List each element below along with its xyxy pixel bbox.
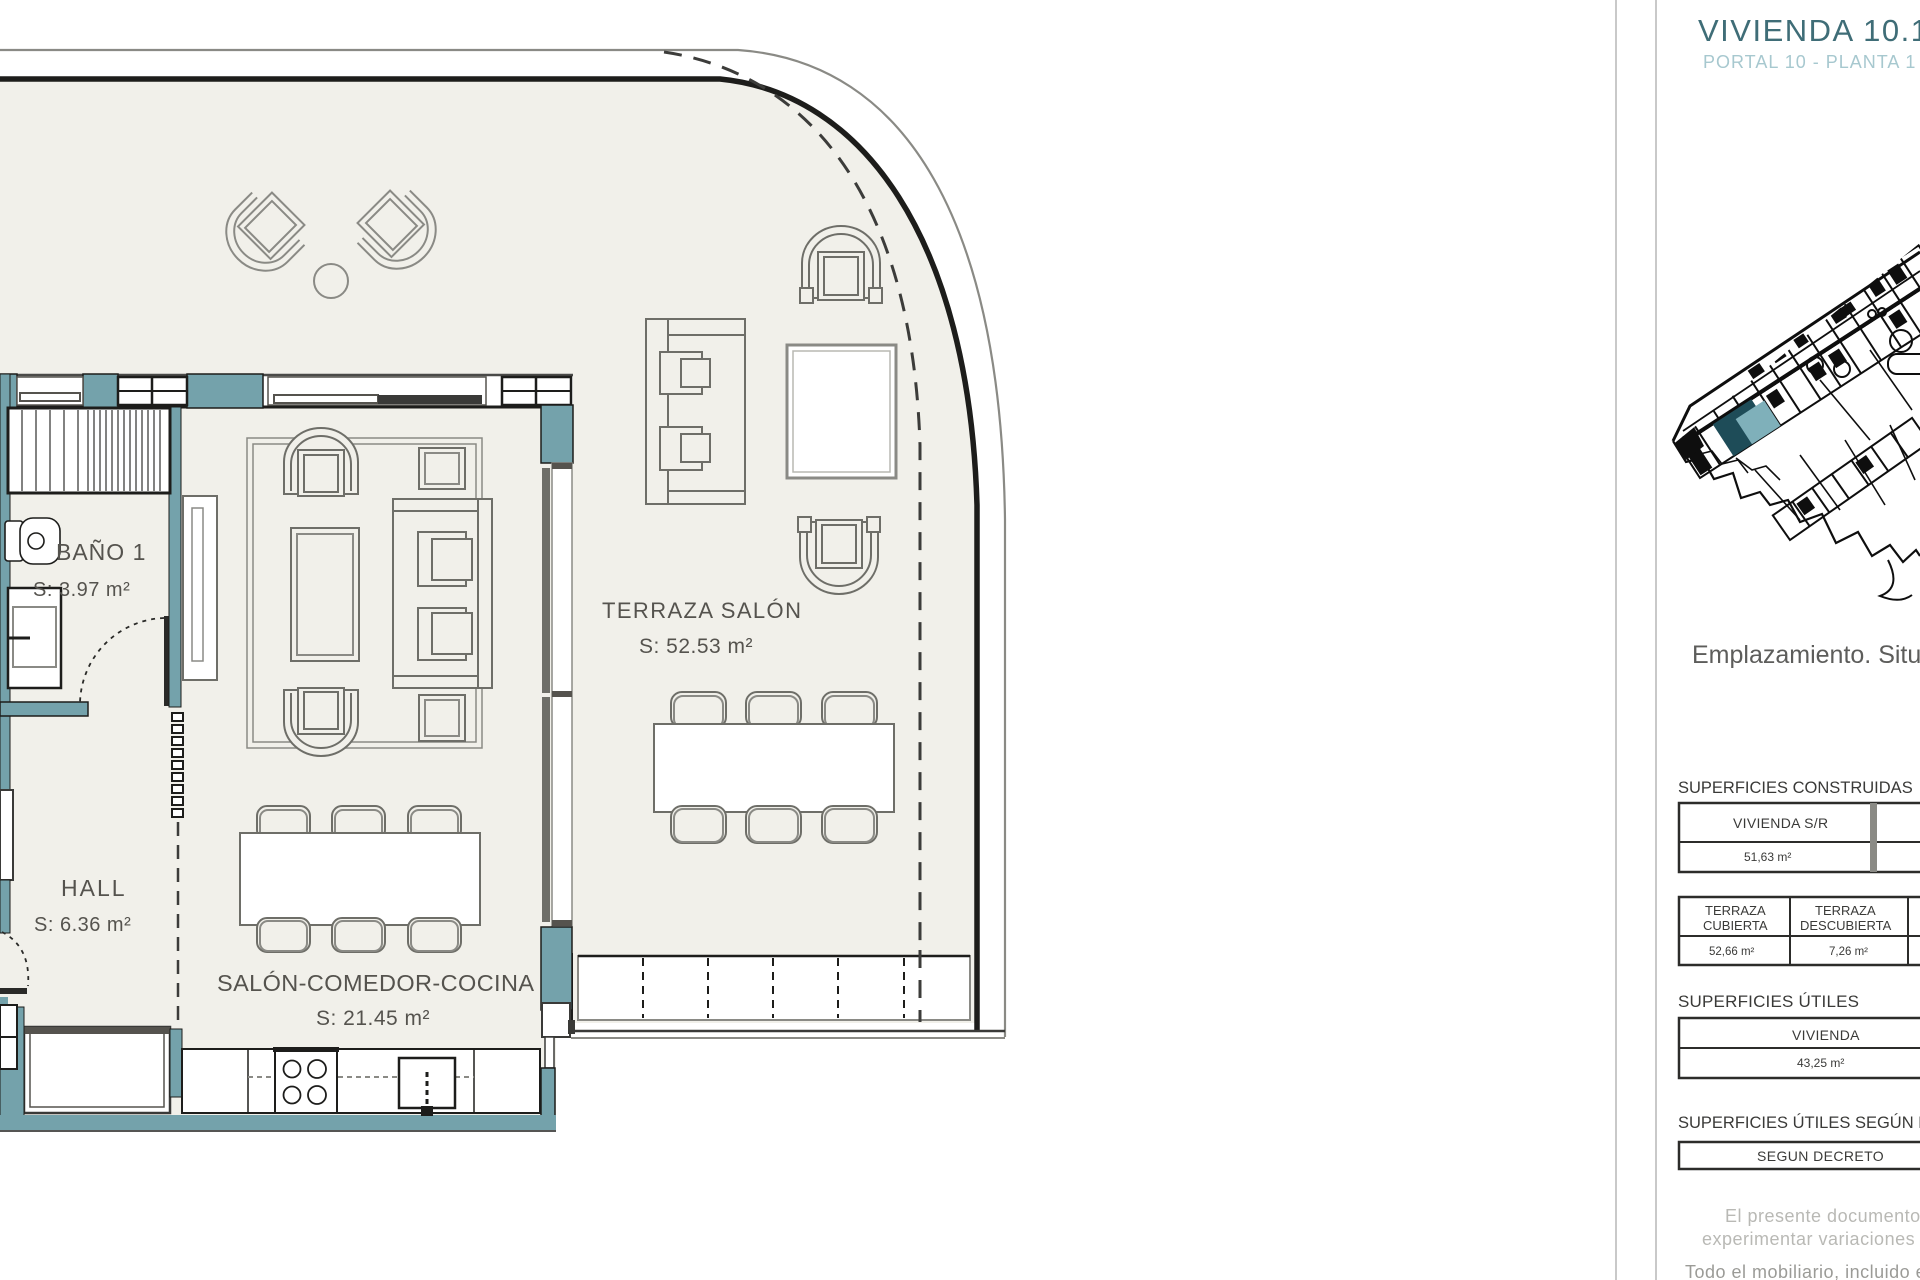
svg-text:experimentar variaciones: experimentar variaciones bbox=[1702, 1229, 1915, 1249]
svg-text:SEGUN DECRETO: SEGUN DECRETO bbox=[1757, 1148, 1884, 1164]
svg-text:El presente documento: El presente documento bbox=[1725, 1206, 1920, 1226]
svg-text:SUPERFICIES ÚTILES: SUPERFICIES ÚTILES bbox=[1678, 992, 1859, 1011]
svg-text:DESCUBIERTA: DESCUBIERTA bbox=[1800, 918, 1892, 933]
svg-text:S: 52.53 m²: S: 52.53 m² bbox=[639, 635, 753, 658]
svg-text:Todo el mobiliario, incluido e: Todo el mobiliario, incluido el bbox=[1685, 1262, 1920, 1280]
svg-text:BAÑO 1: BAÑO 1 bbox=[56, 539, 146, 565]
svg-text:VIVIENDA 10.1.2: VIVIENDA 10.1.2 bbox=[1698, 13, 1920, 48]
svg-text:S: 6.36 m²: S: 6.36 m² bbox=[34, 914, 131, 936]
svg-text:S: 3.97 m²: S: 3.97 m² bbox=[33, 579, 130, 601]
svg-text:SALÓN-COMEDOR-COCINA: SALÓN-COMEDOR-COCINA bbox=[217, 970, 534, 996]
svg-text:HALL: HALL bbox=[61, 875, 127, 901]
svg-text:PORTAL 10 - PLANTA 1: PORTAL 10 - PLANTA 1 bbox=[1703, 52, 1916, 72]
svg-text:51,63 m²: 51,63 m² bbox=[1744, 850, 1791, 864]
svg-text:SUPERFICIES ÚTILES SEGÚN DECRE: SUPERFICIES ÚTILES SEGÚN DECRETO bbox=[1678, 1113, 1920, 1132]
svg-text:SUPERFICIES CONSTRUIDAS: SUPERFICIES CONSTRUIDAS bbox=[1678, 779, 1913, 797]
svg-text:43,25 m²: 43,25 m² bbox=[1797, 1056, 1844, 1070]
svg-text:7,26 m²: 7,26 m² bbox=[1829, 946, 1868, 958]
svg-text:S: 21.45 m²: S: 21.45 m² bbox=[316, 1007, 430, 1030]
svg-text:52,66 m²: 52,66 m² bbox=[1709, 946, 1755, 958]
svg-text:TERRAZA: TERRAZA bbox=[1815, 903, 1876, 918]
svg-text:VIVIENDA: VIVIENDA bbox=[1792, 1027, 1860, 1043]
svg-text:VIVIENDA S/R: VIVIENDA S/R bbox=[1733, 815, 1828, 831]
svg-text:CUBIERTA: CUBIERTA bbox=[1703, 918, 1768, 933]
svg-text:TERRAZA SALÓN: TERRAZA SALÓN bbox=[602, 598, 802, 623]
svg-text:Emplazamiento. Situación: Emplazamiento. Situación bbox=[1692, 641, 1920, 669]
svg-text:TERRAZA: TERRAZA bbox=[1705, 903, 1766, 918]
